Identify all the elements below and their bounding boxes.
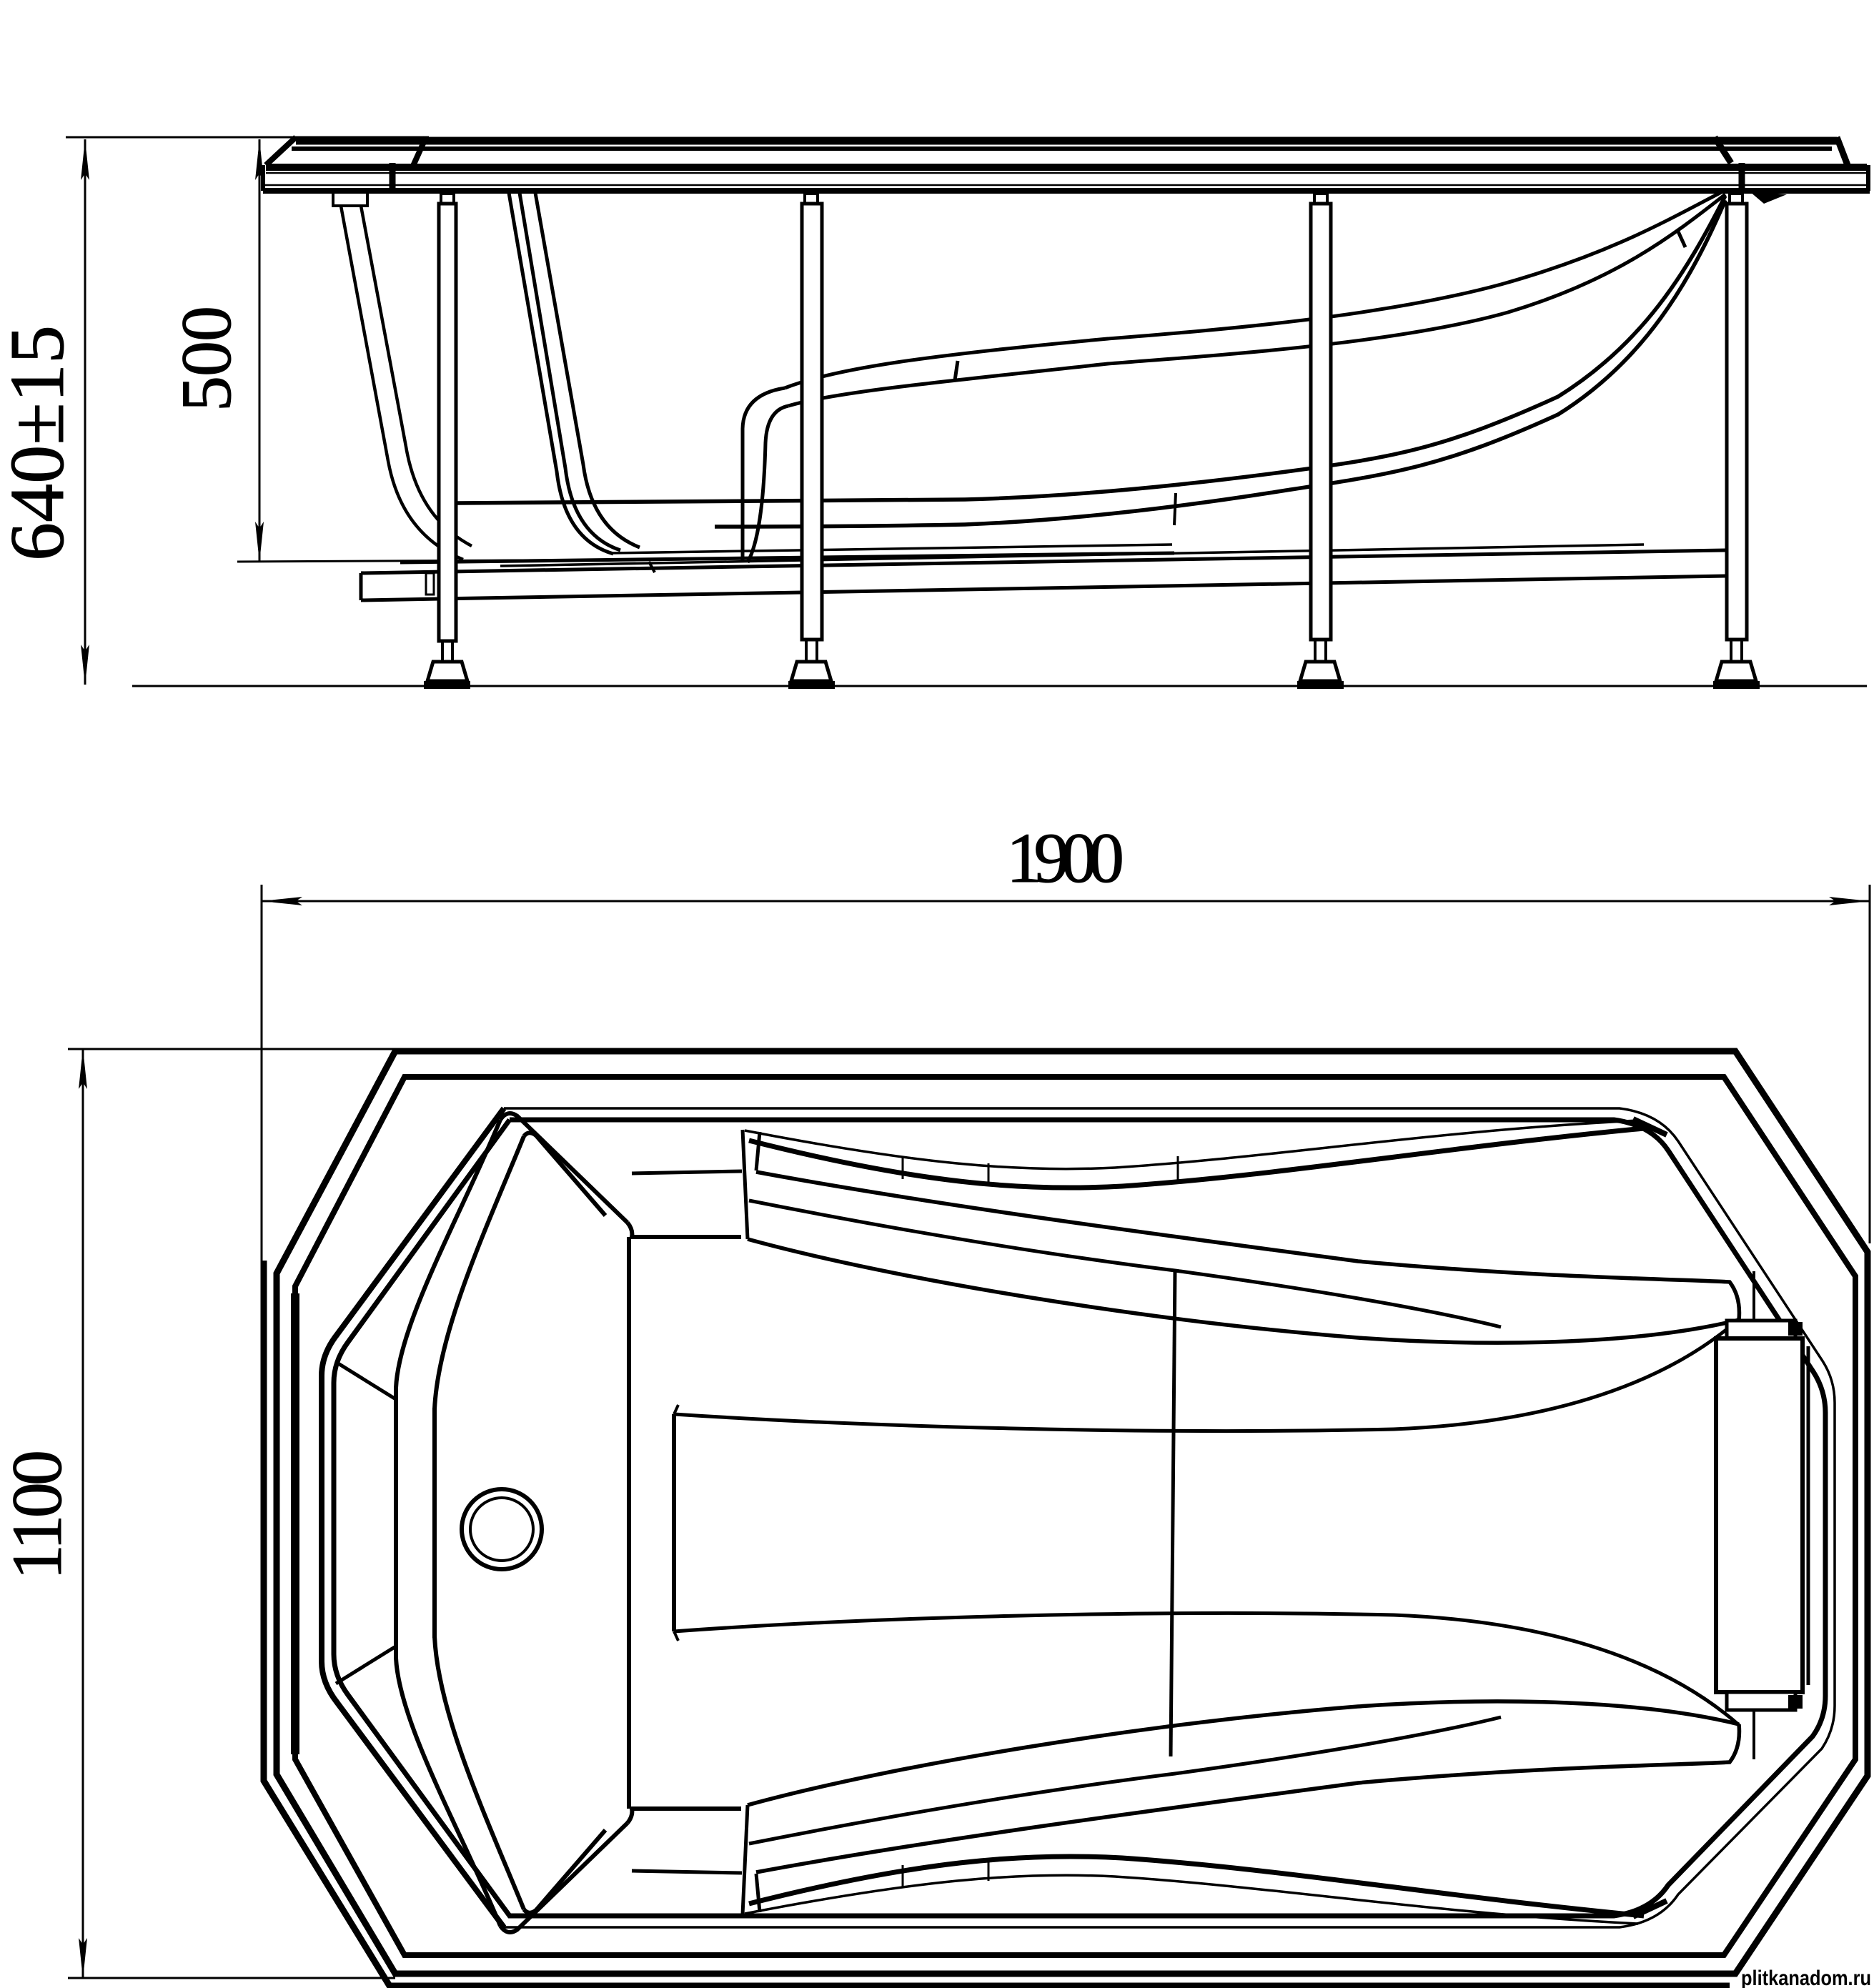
- svg-text:500: 500: [167, 306, 246, 412]
- svg-text:1100: 1100: [0, 1450, 76, 1580]
- svg-text:plitkanadom.ru: plitkanadom.ru: [1741, 1967, 1871, 1988]
- svg-text:1900: 1900: [1006, 818, 1124, 898]
- svg-text:640±15: 640±15: [0, 325, 80, 561]
